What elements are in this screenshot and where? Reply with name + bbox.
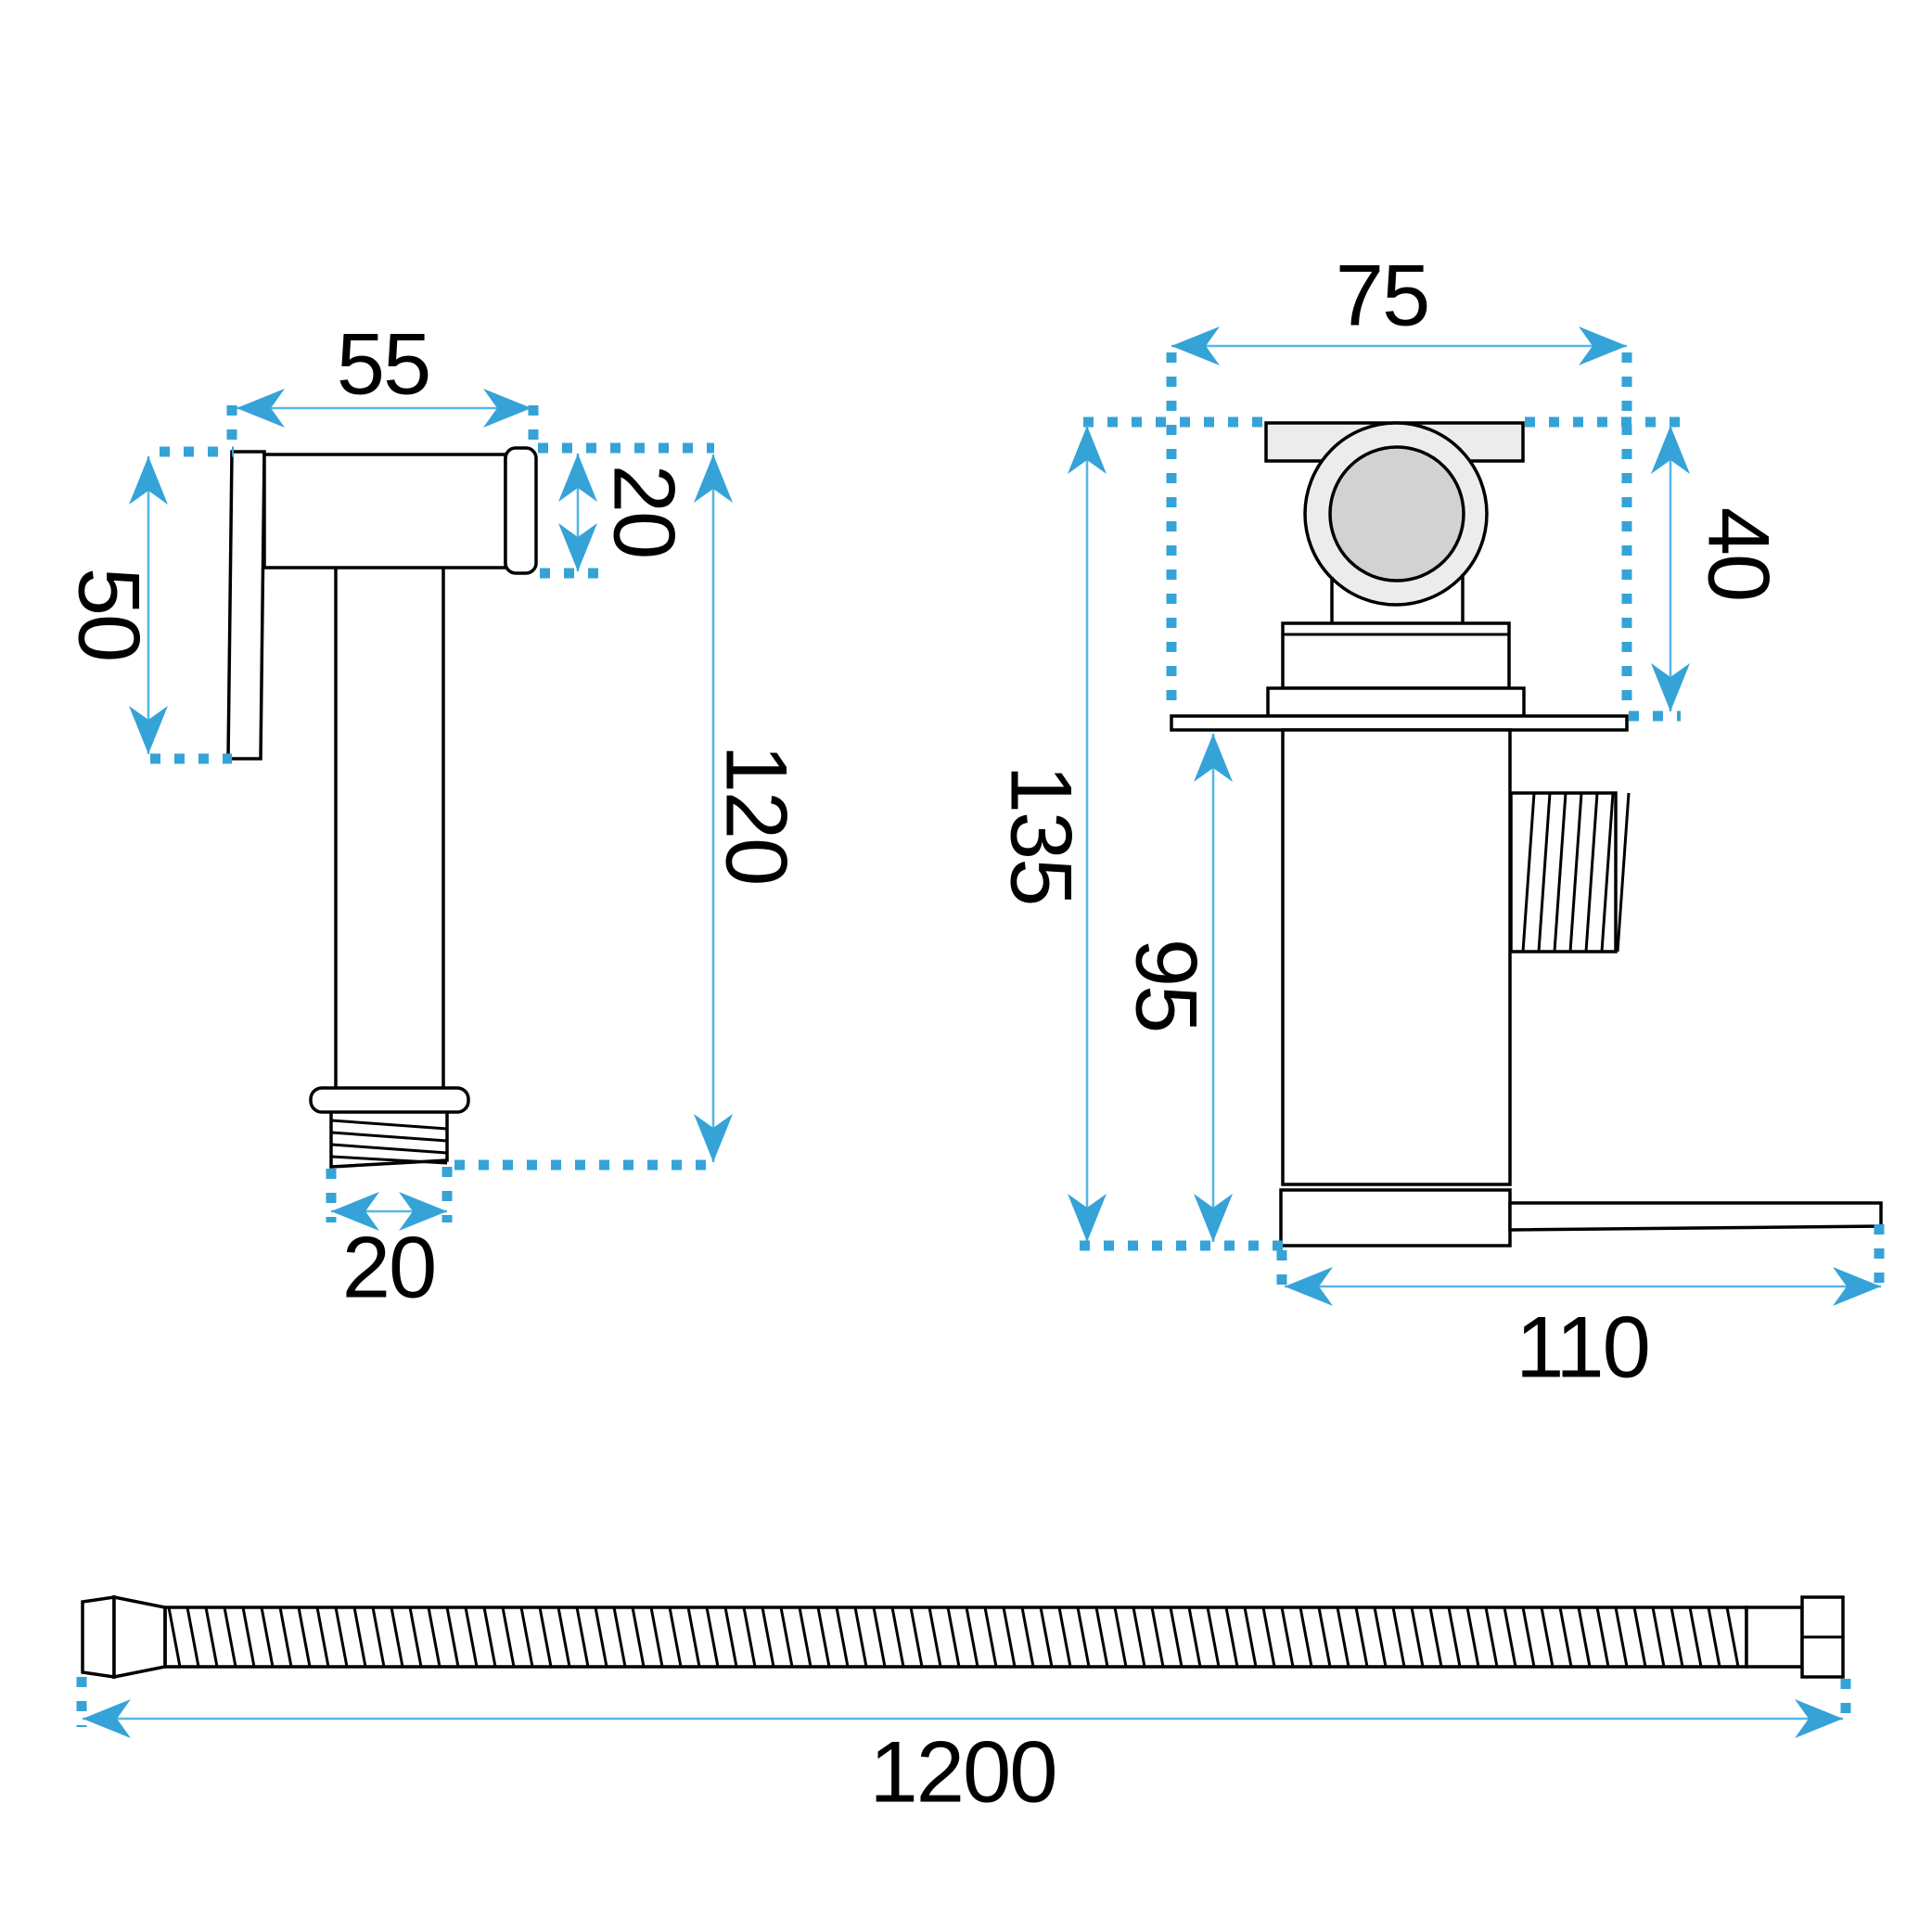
sprayer-collar: [311, 1088, 468, 1112]
valve-base-width-label: 110: [1516, 1299, 1649, 1396]
hose-right-plain-section: [1746, 1607, 1802, 1667]
valve-handle-height-label: 40: [1691, 507, 1788, 601]
sprayer-body-length-label: 120: [709, 745, 806, 885]
sprayer-head-length-label: 55: [337, 315, 430, 413]
sprayer-connector-diameter-label: 20: [342, 1219, 436, 1316]
valve-base-step: [1268, 688, 1524, 716]
hose-ribbed-body: [165, 1607, 1746, 1667]
hose-left-fitting-cone: [114, 1597, 165, 1677]
sprayer-side-view: 55 50 20 120 20: [61, 315, 806, 1316]
sprayer-head-diameter-label: 20: [596, 465, 694, 558]
hose-length-label: 1200: [869, 1723, 1056, 1821]
valve-holder-arm: [1510, 1203, 1881, 1230]
sprayer-nozzle-cap: [505, 448, 536, 573]
valve-flange-width-label: 75: [1336, 247, 1429, 344]
valve-body-cylinder: [1283, 730, 1510, 1184]
hose-left-fitting-block: [83, 1597, 114, 1677]
valve-bottom-cap: [1281, 1190, 1510, 1246]
valve-body-height-label: 95: [1119, 939, 1216, 1032]
valve-handle-knob: [1330, 447, 1464, 581]
sprayer-grip-height-label: 50: [61, 568, 159, 661]
valve-front-view: 75 40 135 95 110: [993, 247, 1882, 1396]
sprayer-trigger-lever: [228, 452, 264, 759]
sprayer-thread-lines: [331, 1120, 447, 1163]
valve-flange-plate: [1171, 716, 1627, 730]
valve-total-height-label: 135: [993, 765, 1091, 905]
technical-drawing-canvas: 55 50 20 120 20: [0, 0, 1932, 1932]
sprayer-head-body: [264, 454, 505, 568]
hose-view: 1200: [82, 1597, 1846, 1821]
